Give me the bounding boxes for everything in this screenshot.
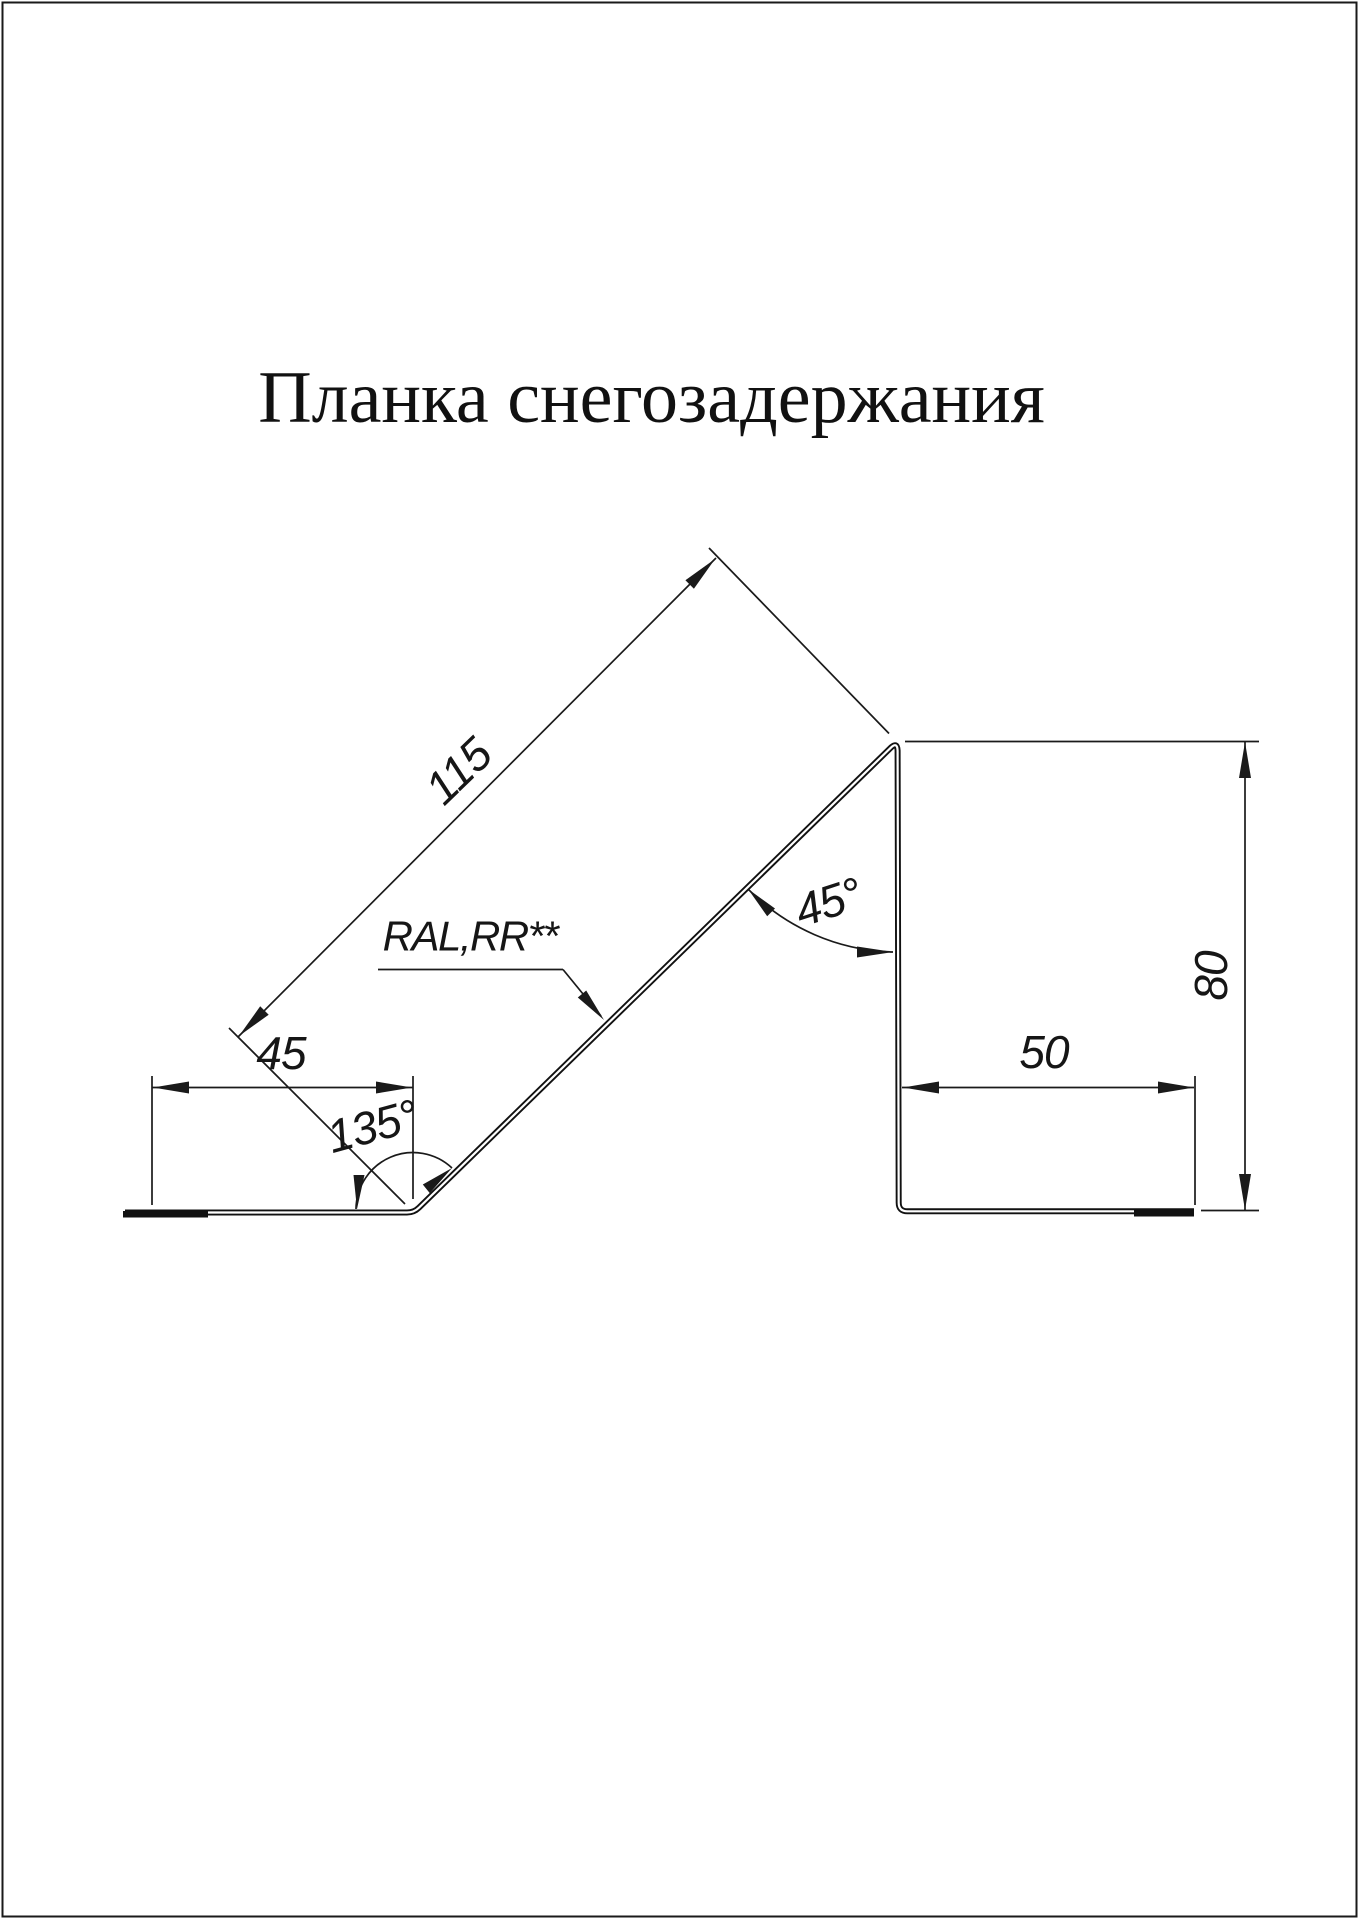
dim-45-arrow-left	[153, 1082, 189, 1094]
right-hem-fold	[1134, 1210, 1194, 1217]
material-label: RAL,RR**	[383, 913, 561, 960]
profile-outline	[125, 745, 1194, 1212]
profile-inner-face	[125, 745, 1194, 1212]
material-leader-arrow	[578, 991, 604, 1021]
dim-115-arrow-upper	[685, 559, 715, 589]
drawing-sheet: Планка снегозадержания	[0, 0, 1359, 1920]
dim-115-line	[238, 558, 716, 1037]
angle-45-label: 45°	[788, 867, 868, 937]
dim-80-label: 80	[1185, 950, 1237, 1001]
angle-45-arrow-bottom	[857, 947, 893, 958]
dim-80-arrow-top	[1239, 742, 1251, 778]
page-border	[3, 3, 1357, 1917]
angle-135-arrow-lower	[354, 1175, 365, 1209]
dimension-arrowheads	[153, 559, 1251, 1210]
dim-45-label: 45	[256, 1027, 307, 1079]
dim-80-arrow-bottom	[1239, 1174, 1251, 1210]
dim-115-label: 115	[415, 727, 503, 814]
drawing-canvas: 45 50 80 115 135° 45° RAL,RR**	[0, 0, 1359, 1920]
dim-50-label: 50	[1019, 1026, 1070, 1078]
angle-45-arrow-left	[748, 889, 775, 916]
left-hem-fold	[123, 1211, 208, 1218]
dim-115-ext-upper	[709, 548, 889, 734]
angle-135-label: 135°	[321, 1089, 423, 1163]
dimension-lines	[152, 548, 1259, 1211]
dim-50-arrow-left	[903, 1082, 939, 1094]
dim-50-arrow-right	[1158, 1082, 1194, 1094]
